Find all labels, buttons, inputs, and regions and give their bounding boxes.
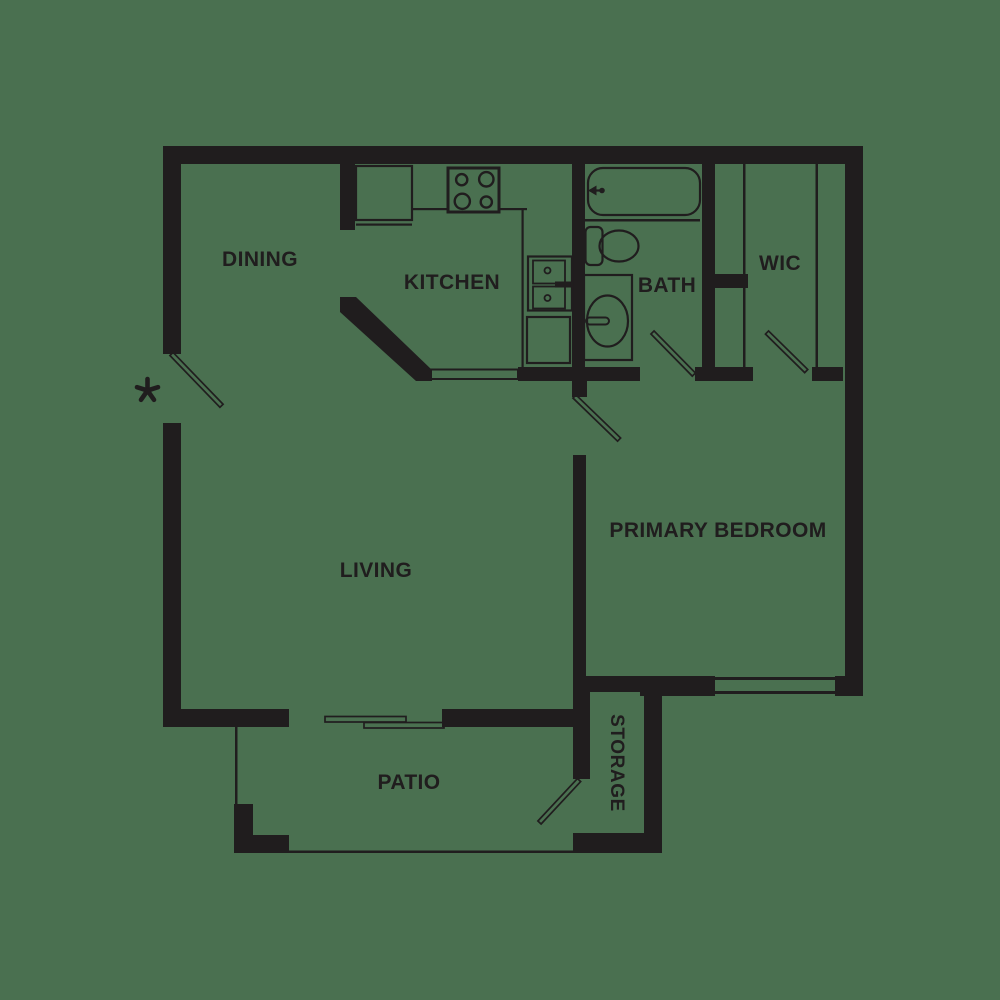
pass-through-counter bbox=[430, 370, 518, 380]
tub-faucet-icon bbox=[588, 186, 605, 196]
room-label-kitchen: KITCHEN bbox=[404, 271, 500, 294]
dishwasher-counter bbox=[527, 317, 570, 363]
wall-bath-bottom bbox=[695, 367, 753, 381]
wall-living-bottom bbox=[163, 709, 289, 727]
room-label-bath: BATH bbox=[638, 274, 696, 297]
bedroom-door-leaf bbox=[573, 395, 621, 441]
room-label-dining: DINING bbox=[222, 248, 298, 271]
floor-plan-drawing: DINING KITCHEN BATH WIC PRIMARY BEDROOM … bbox=[0, 0, 1000, 1000]
wall-wic-bottom bbox=[812, 367, 843, 381]
room-label-patio: PATIO bbox=[377, 771, 440, 794]
room-label-living: LIVING bbox=[340, 559, 412, 582]
closet-rod-line-left bbox=[743, 164, 746, 367]
bedroom-window-outer-line bbox=[715, 677, 835, 680]
wall-storage-left bbox=[573, 692, 590, 779]
wall-hall-top bbox=[518, 367, 640, 381]
wall-left-lower bbox=[163, 423, 181, 727]
sink-basin-bottom bbox=[533, 287, 565, 309]
storage-door-leaf bbox=[538, 779, 581, 824]
wall-bath-wic bbox=[702, 164, 715, 367]
wall-right bbox=[845, 146, 863, 696]
wall-patio-door-right bbox=[442, 709, 582, 727]
vanity-faucet-icon bbox=[586, 318, 609, 325]
floor-plan: DINING KITCHEN BATH WIC PRIMARY BEDROOM … bbox=[0, 0, 1000, 1000]
wall-storage-top bbox=[573, 676, 715, 692]
burner-top-right-icon bbox=[479, 172, 493, 186]
wall-storage-bottom bbox=[573, 833, 662, 853]
doors bbox=[170, 331, 808, 824]
burner-top-left-icon bbox=[456, 174, 467, 185]
entry-door-leaf bbox=[170, 352, 223, 407]
thin-lines bbox=[235, 164, 835, 853]
sink-drain-bottom-icon bbox=[545, 295, 551, 301]
wall-left-upper bbox=[163, 146, 181, 354]
bedroom-window-inner-line bbox=[715, 691, 835, 694]
patio-step-horizontal bbox=[234, 835, 289, 853]
bath-door-leaf bbox=[651, 331, 695, 376]
refrigerator-front-line bbox=[356, 224, 412, 226]
wall-top bbox=[163, 146, 863, 164]
sliding-glass-door bbox=[325, 717, 444, 729]
burner-bottom-right-icon bbox=[481, 196, 492, 207]
kitchen-faucet-icon bbox=[555, 282, 572, 288]
wall-bedroom-bottom-right bbox=[835, 676, 863, 696]
patio-left-edge-line bbox=[235, 727, 238, 805]
sink-drain-top-icon bbox=[545, 268, 551, 274]
entry-asterisk-icon bbox=[137, 379, 158, 400]
closet-rod-line-right bbox=[816, 164, 819, 367]
bath-fixtures bbox=[584, 168, 700, 360]
refrigerator-icon bbox=[356, 166, 412, 220]
wall-living-bedroom bbox=[573, 455, 586, 676]
counter-edge-left bbox=[412, 208, 448, 210]
vanity-sink-icon bbox=[587, 296, 628, 347]
room-label-storage: STORAGE bbox=[606, 714, 627, 812]
wall-bedroom-door-stub bbox=[572, 381, 587, 397]
burner-bottom-left-icon bbox=[455, 194, 470, 209]
wic-door-leaf bbox=[765, 331, 807, 373]
room-label-wic: WIC bbox=[759, 252, 801, 275]
patio-bottom-edge-line bbox=[288, 851, 574, 854]
wall-kitchen-diagonal bbox=[340, 297, 432, 381]
patio-step-vertical bbox=[234, 804, 253, 836]
room-labels: DINING KITCHEN BATH WIC PRIMARY BEDROOM … bbox=[222, 248, 827, 812]
room-label-primary-bedroom: PRIMARY BEDROOM bbox=[609, 519, 826, 542]
wall-storage-right bbox=[644, 692, 662, 853]
bathtub-icon bbox=[588, 168, 700, 215]
tub-deck-line bbox=[585, 219, 700, 222]
toilet-bowl-icon bbox=[600, 231, 639, 262]
counter-edge-vertical bbox=[522, 208, 524, 367]
wall-dining-kitchen bbox=[340, 164, 355, 230]
